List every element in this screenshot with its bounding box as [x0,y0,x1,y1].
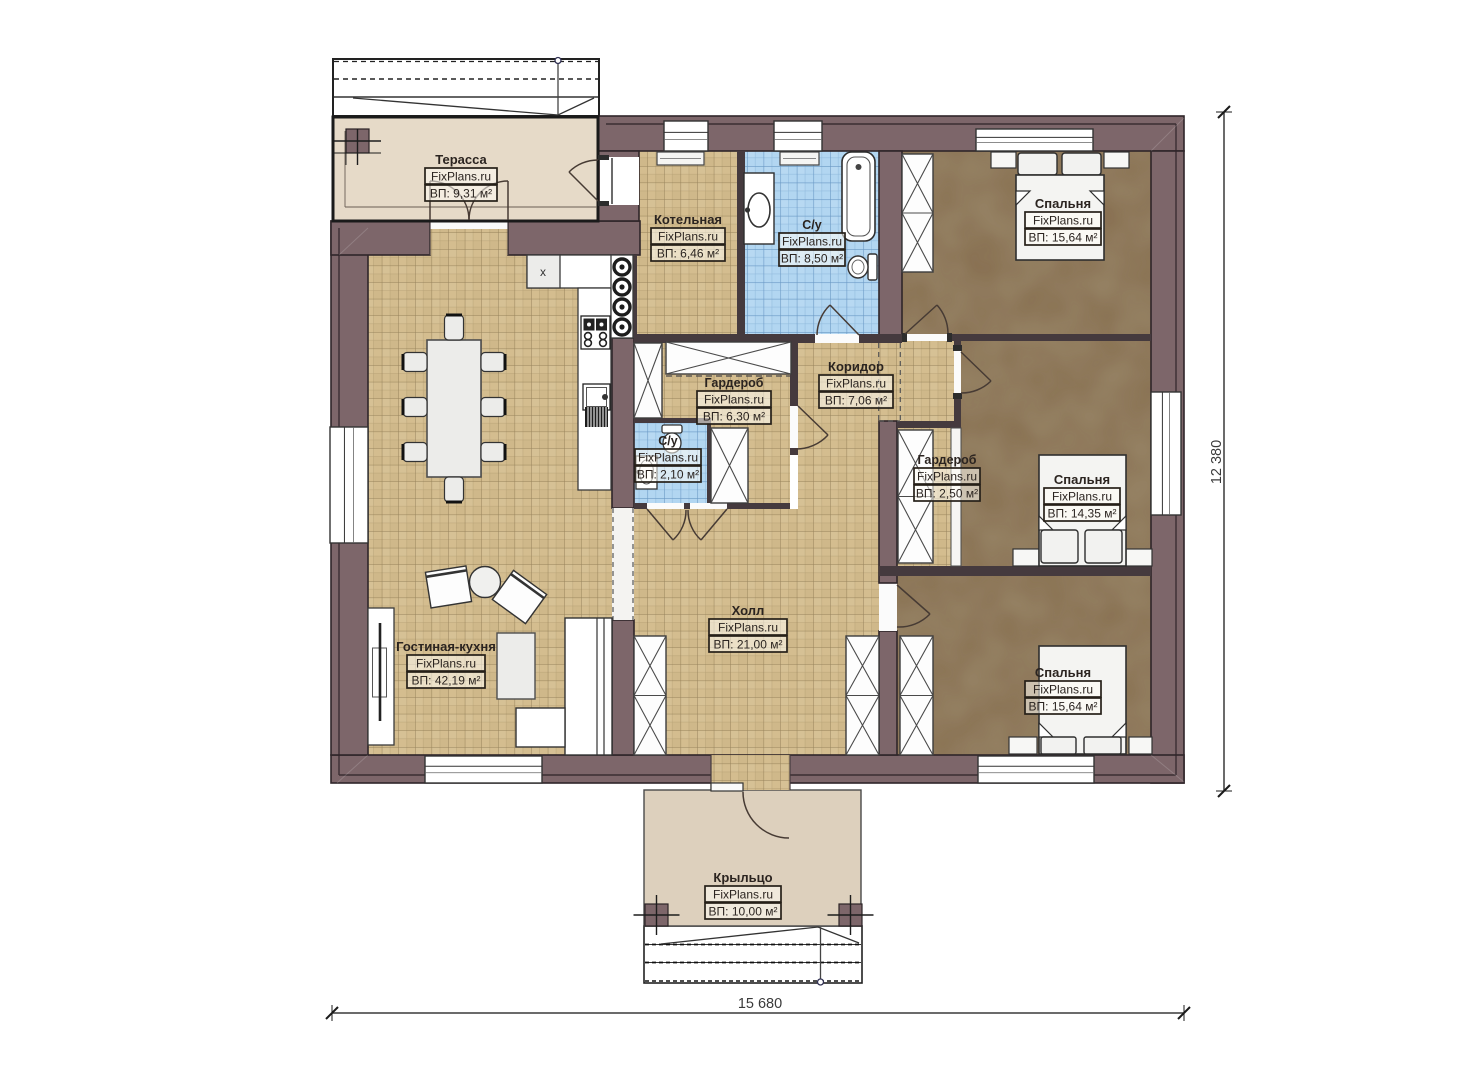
svg-text:ВП: 8,50 м²: ВП: 8,50 м² [781,252,843,266]
svg-text:Холл: Холл [732,603,765,618]
svg-text:FixPlans.ru: FixPlans.ru [638,451,698,465]
svg-text:Котельная: Котельная [654,212,722,227]
svg-text:ВП: 6,30 м²: ВП: 6,30 м² [703,410,765,424]
svg-text:Спальня: Спальня [1035,665,1091,680]
svg-text:С/у: С/у [658,434,678,448]
svg-text:FixPlans.ru: FixPlans.ru [1052,490,1112,504]
svg-text:Гардероб: Гардероб [704,376,763,390]
svg-text:FixPlans.ru: FixPlans.ru [826,377,886,391]
svg-text:ВП: 10,00 м²: ВП: 10,00 м² [709,905,778,919]
svg-text:FixPlans.ru: FixPlans.ru [1033,683,1093,697]
svg-text:ВП: 2,50 м²: ВП: 2,50 м² [916,487,978,501]
svg-text:ВП: 42,19 м²: ВП: 42,19 м² [412,674,481,688]
svg-text:Гостиная-кухня: Гостиная-кухня [396,639,496,654]
svg-text:FixPlans.ru: FixPlans.ru [782,235,842,249]
svg-text:FixPlans.ru: FixPlans.ru [431,170,491,184]
svg-text:Терасса: Терасса [435,152,487,167]
svg-text:FixPlans.ru: FixPlans.ru [704,393,764,407]
svg-text:Гардероб: Гардероб [917,453,976,467]
svg-text:ВП: 14,35 м²: ВП: 14,35 м² [1048,507,1117,521]
svg-text:ВП: 6,46 м²: ВП: 6,46 м² [657,247,719,261]
svg-text:FixPlans.ru: FixPlans.ru [713,888,773,902]
svg-text:ВП: 7,06 м²: ВП: 7,06 м² [825,394,887,408]
svg-text:FixPlans.ru: FixPlans.ru [917,470,977,484]
svg-text:С/у: С/у [802,218,822,232]
svg-text:Крыльцо: Крыльцо [713,870,772,885]
svg-text:ВП: 21,00 м²: ВП: 21,00 м² [714,638,783,652]
svg-text:12 380: 12 380 [1209,440,1225,484]
svg-text:15 680: 15 680 [738,996,782,1012]
svg-text:ВП: 9,31 м²: ВП: 9,31 м² [430,187,492,201]
svg-text:x: x [540,265,546,279]
svg-text:FixPlans.ru: FixPlans.ru [718,621,778,635]
svg-text:FixPlans.ru: FixPlans.ru [658,230,718,244]
svg-text:ВП: 2,10 м²: ВП: 2,10 м² [637,468,699,482]
svg-text:Коридор: Коридор [828,359,884,374]
svg-text:FixPlans.ru: FixPlans.ru [1033,214,1093,228]
svg-text:FixPlans.ru: FixPlans.ru [416,657,476,671]
svg-text:ВП: 15,64 м²: ВП: 15,64 м² [1029,700,1098,714]
svg-text:Спальня: Спальня [1035,196,1091,211]
svg-text:ВП: 15,64 м²: ВП: 15,64 м² [1029,231,1098,245]
svg-text:Спальня: Спальня [1054,472,1110,487]
